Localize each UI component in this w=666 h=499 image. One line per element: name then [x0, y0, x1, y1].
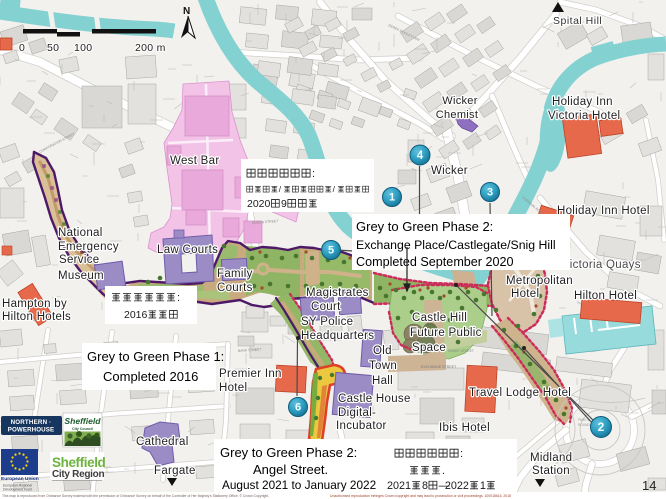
svg-text:1: 1 [389, 192, 395, 204]
svg-text:6: 6 [295, 402, 301, 414]
svg-text:Sheffield: Sheffield [64, 416, 101, 426]
svg-text:Completed 2016: Completed 2016 [103, 369, 198, 384]
svg-text:Magistrates: Magistrates [306, 287, 369, 299]
svg-text:Courts: Courts [217, 282, 253, 294]
svg-text:Incubator: Incubator [336, 420, 387, 432]
svg-text:Hotel: Hotel [219, 382, 247, 394]
svg-text:0: 0 [19, 42, 25, 54]
svg-text:200 m: 200 m [135, 42, 166, 54]
svg-text:5: 5 [328, 245, 334, 257]
svg-text:Grey to Green Phase 1:: Grey to Green Phase 1: [87, 349, 224, 364]
svg-text:Headquarters: Headquarters [301, 330, 374, 342]
svg-text:National: National [58, 227, 103, 239]
svg-text:2021: 2021 [387, 480, 411, 492]
svg-text:2016: 2016 [124, 309, 148, 321]
svg-text:POWERHOUSE: POWERHOUSE [8, 427, 54, 434]
svg-text:Victoria Quays: Victoria Quays [562, 259, 641, 271]
svg-text:Hilton Hotels: Hilton Hotels [2, 311, 71, 323]
svg-text:1: 1 [480, 480, 486, 492]
svg-text:Sheffield: Sheffield [52, 455, 106, 470]
svg-text:14: 14 [642, 478, 656, 493]
svg-text:Law Courts: Law Courts [157, 244, 218, 256]
svg-text:N: N [183, 6, 190, 17]
svg-text:Spital Hill: Spital Hill [553, 15, 602, 27]
svg-text:Cathedral: Cathedral [136, 436, 189, 448]
svg-text:Wicker: Wicker [442, 95, 477, 107]
svg-text:Travel Lodge Hotel: Travel Lodge Hotel [469, 387, 571, 399]
svg-text:Development Fund: Development Fund [3, 488, 32, 492]
svg-text:Metropolitan: Metropolitan [506, 275, 573, 287]
svg-text:Hall: Hall [372, 375, 393, 387]
svg-text:Hampton by: Hampton by [2, 298, 67, 310]
svg-text:Court: Court [311, 301, 341, 313]
svg-text:European Union: European Union [1, 476, 39, 482]
svg-text:City Council: City Council [72, 427, 93, 431]
svg-text:Ibis Hotel: Ibis Hotel [439, 422, 490, 434]
svg-text:50: 50 [47, 42, 59, 54]
svg-text:Town: Town [369, 360, 397, 372]
svg-text:Angel Street.: Angel Street. [253, 462, 328, 477]
svg-text:Wicker: Wicker [431, 165, 468, 177]
svg-text:Grey to Green Phase 2:: Grey to Green Phase 2: [356, 219, 493, 234]
svg-text:NORTHERN ·: NORTHERN · [11, 419, 52, 426]
svg-text::: : [177, 292, 180, 304]
svg-text:Family: Family [217, 268, 253, 280]
svg-text:8: 8 [422, 480, 428, 492]
svg-text:Midland: Midland [530, 452, 572, 464]
svg-text:Completed September 2020: Completed September 2020 [356, 255, 514, 269]
svg-text:Fargate: Fargate [154, 465, 196, 477]
svg-text:2022: 2022 [445, 480, 469, 492]
svg-text:Unauthorised reproduction infr: Unauthorised reproduction infringes Crow… [330, 494, 511, 498]
svg-text:This map is reproduced from Or: This map is reproduced from Ordnance Sur… [2, 494, 269, 498]
svg-text::: : [460, 448, 463, 460]
svg-text:Station: Station [532, 465, 570, 477]
svg-text:.: . [442, 465, 445, 477]
svg-text:Victoria Hotel: Victoria Hotel [548, 110, 620, 122]
svg-text:100: 100 [74, 42, 92, 54]
svg-text:West Bar: West Bar [170, 155, 219, 167]
svg-text:Castle Hill: Castle Hill [412, 312, 467, 324]
svg-text:City Region: City Region [52, 469, 104, 480]
svg-text:SY Police: SY Police [301, 316, 353, 328]
svg-text:Hotel: Hotel [511, 288, 539, 300]
svg-text:DRAKE STREET: DRAKE STREET [448, 349, 474, 353]
svg-text:Service: Service [59, 254, 99, 266]
svg-text:Grey to Green Phase 2:: Grey to Green Phase 2: [220, 445, 357, 460]
svg-text:4: 4 [417, 150, 424, 162]
svg-text:Space: Space [412, 342, 446, 354]
svg-text:Hilton Hotel: Hilton Hotel [574, 290, 637, 302]
svg-text:Chemist: Chemist [436, 109, 478, 121]
svg-text:Emergency: Emergency [58, 241, 119, 253]
svg-text:Museum: Museum [58, 270, 104, 282]
svg-text::: : [312, 168, 315, 180]
svg-text:2020: 2020 [247, 198, 271, 210]
svg-text:August 2021 to January 2022: August 2021 to January 2022 [222, 478, 376, 492]
svg-text:Castle House: Castle House [338, 393, 411, 405]
svg-text:Old: Old [373, 345, 392, 357]
svg-text:Future Public: Future Public [410, 327, 482, 339]
svg-text:2: 2 [598, 420, 605, 434]
svg-text:3: 3 [487, 187, 493, 199]
svg-text:EXCHANGE STREET: EXCHANGE STREET [421, 365, 457, 369]
svg-text:Exchange Place/Castlegate/Snig: Exchange Place/Castlegate/Snig Hill [356, 238, 556, 252]
svg-text:Premier Inn: Premier Inn [219, 368, 282, 380]
svg-text:Digital-: Digital- [338, 407, 376, 419]
svg-text:Holiday Inn Hotel: Holiday Inn Hotel [557, 205, 650, 217]
svg-text:Holiday Inn: Holiday Inn [552, 96, 613, 108]
svg-text:9: 9 [281, 198, 287, 210]
